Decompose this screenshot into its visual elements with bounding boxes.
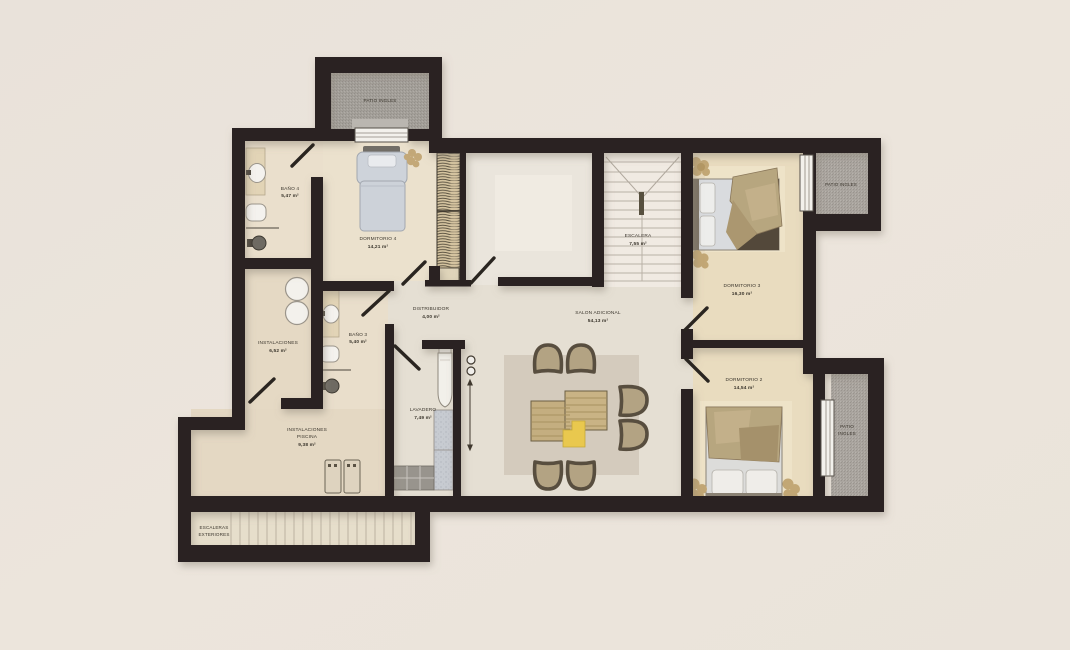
svg-text:PATIO INGLES: PATIO INGLES — [825, 182, 857, 187]
svg-text:PATIO INGLES: PATIO INGLES — [363, 98, 396, 103]
